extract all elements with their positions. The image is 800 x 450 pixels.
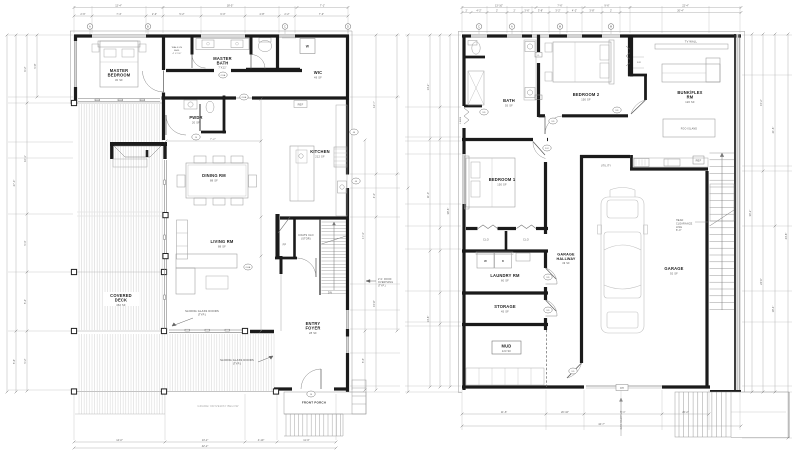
svg-text:STORAGE: STORAGE xyxy=(494,304,516,309)
svg-text:FRONT PORCH: FRONT PORCH xyxy=(302,401,326,405)
svg-text:11'-6": 11'-6" xyxy=(501,410,507,414)
svg-text:4'-2": 4'-2" xyxy=(572,8,577,12)
svg-text:5'-4": 5'-4" xyxy=(23,299,27,304)
svg-text:FUR: FUR xyxy=(637,62,642,64)
svg-text:SD: SD xyxy=(546,310,550,312)
svg-text:C: C xyxy=(478,24,480,28)
svg-text:HALLWAY: HALLWAY xyxy=(556,257,575,261)
svg-text:14'-8": 14'-8" xyxy=(426,316,430,323)
svg-text:CL: CL xyxy=(537,55,540,57)
svg-text:92 SF: 92 SF xyxy=(670,272,678,276)
svg-text:(TYP.): (TYP.) xyxy=(198,313,206,317)
svg-text:21'-6": 21'-6" xyxy=(771,127,775,134)
svg-text:5'-6": 5'-6" xyxy=(12,359,16,364)
svg-text:212 SF: 212 SF xyxy=(315,155,325,159)
svg-text:A: A xyxy=(89,24,91,28)
svg-text:UTILITY: UTILITY xyxy=(601,165,612,168)
svg-text:44'-7": 44'-7" xyxy=(598,422,605,426)
svg-text:88 SF: 88 SF xyxy=(218,245,226,249)
svg-text:20'-2": 20'-2" xyxy=(682,410,689,414)
svg-text:CL: CL xyxy=(537,97,540,99)
svg-text:3'-6": 3'-6" xyxy=(524,8,529,12)
svg-text:SLIDING GLASS DOORS: SLIDING GLASS DOORS xyxy=(185,309,219,313)
svg-text:FP: FP xyxy=(283,243,287,247)
svg-text:SD: SD xyxy=(615,110,619,112)
svg-text:OHA: OHA xyxy=(246,266,251,269)
svg-text:7'-1": 7'-1" xyxy=(620,410,625,414)
svg-text:A: A xyxy=(511,24,513,28)
svg-text:120 SF: 120 SF xyxy=(685,100,695,104)
svg-text:OHA: OHA xyxy=(242,96,247,99)
svg-text:7'-6": 7'-6" xyxy=(557,3,562,7)
svg-text:REF: REF xyxy=(298,102,304,106)
svg-text:150 SF: 150 SF xyxy=(581,98,591,102)
svg-text:12'-4": 12'-4" xyxy=(115,3,122,7)
svg-text:27'-0": 27'-0" xyxy=(12,180,16,187)
svg-text:44'-8": 44'-8" xyxy=(784,233,788,240)
svg-text:7'X12': 7'X12' xyxy=(218,65,227,69)
svg-text:LAUNDRY RM: LAUNDRY RM xyxy=(490,273,520,278)
svg-text:7'-3": 7'-3" xyxy=(319,12,324,16)
svg-text:KITCHEN: KITCHEN xyxy=(310,149,330,154)
svg-text:CLO: CLO xyxy=(523,238,529,242)
svg-text:(TYP.): (TYP.) xyxy=(233,362,241,366)
svg-text:60 SF: 60 SF xyxy=(501,279,509,283)
svg-text:18'-5": 18'-5" xyxy=(227,3,234,7)
svg-text:7'-4": 7'-4" xyxy=(116,12,121,16)
svg-text:13'-2": 13'-2" xyxy=(202,438,209,442)
svg-text:SD: SD xyxy=(571,371,575,373)
svg-text:7'-1": 7'-1" xyxy=(320,3,325,7)
svg-text:CLO: CLO xyxy=(483,238,489,242)
svg-text:D: D xyxy=(347,24,349,28)
svg-text:B: B xyxy=(147,24,149,28)
svg-text:W: W xyxy=(484,259,487,263)
svg-text:18'-4": 18'-4" xyxy=(771,306,775,313)
svg-text:20'-10": 20'-10" xyxy=(561,410,569,414)
svg-text:202: 202 xyxy=(545,148,550,150)
svg-text:BEDROOM: BEDROOM xyxy=(108,73,131,78)
svg-text:SLIDING GLASS DOORS: SLIDING GLASS DOORS xyxy=(220,358,254,362)
svg-text:2'-3": 2'-3" xyxy=(152,12,157,16)
svg-text:5'-5": 5'-5" xyxy=(361,358,365,363)
svg-text:FOYER: FOYER xyxy=(305,326,320,331)
svg-text:5'-8": 5'-8" xyxy=(33,63,37,68)
svg-text:14'-0": 14'-0" xyxy=(116,438,123,442)
svg-text:6'-2": 6'-2" xyxy=(23,66,27,71)
svg-text:20'-4": 20'-4" xyxy=(677,8,684,12)
svg-text:W: W xyxy=(306,45,310,49)
svg-text:11'-6": 11'-6" xyxy=(303,438,309,442)
svg-text:45 SF: 45 SF xyxy=(501,310,509,314)
svg-text:BEDROOM 1: BEDROOM 1 xyxy=(489,177,516,182)
svg-text:4'-10": 4'-10" xyxy=(258,438,265,442)
svg-text:3'-2": 3'-2" xyxy=(555,8,560,12)
svg-text:3'-8": 3'-8" xyxy=(538,8,543,12)
svg-text:7'-2": 7'-2" xyxy=(210,138,216,141)
svg-text:DN: DN xyxy=(328,291,332,295)
svg-text:4'-0": 4'-0" xyxy=(372,193,376,198)
svg-text:BEDROOM 2: BEDROOM 2 xyxy=(573,92,600,97)
svg-text:88 SF: 88 SF xyxy=(210,179,218,183)
svg-text:C: C xyxy=(284,24,286,28)
svg-text:M: M xyxy=(559,24,561,28)
svg-text:(STOR): (STOR) xyxy=(301,238,310,241)
svg-text:12'-7": 12'-7" xyxy=(372,101,376,108)
svg-text:4'-2": 4'-2" xyxy=(476,8,481,12)
svg-text:WIC: WIC xyxy=(314,70,323,75)
svg-text:MUD: MUD xyxy=(502,344,512,349)
svg-text:6'-0": 6'-0" xyxy=(220,12,225,16)
svg-text:GRADE/ DRIVEWAY BELOW: GRADE/ DRIVEWAY BELOW xyxy=(197,404,238,408)
svg-text:LINEN: LINEN xyxy=(460,116,462,123)
svg-text:SHR.: SHR. xyxy=(174,50,180,52)
svg-text:11'-0": 11'-0" xyxy=(426,192,430,198)
svg-text:WALK-IN: WALK-IN xyxy=(172,46,183,49)
svg-text:GARAGE: GARAGE xyxy=(557,253,575,257)
svg-text:5'-3": 5'-3" xyxy=(23,240,27,245)
svg-text:150 SF: 150 SF xyxy=(497,183,507,187)
svg-text:9'-6": 9'-6" xyxy=(604,3,609,7)
svg-text:17'-4": 17'-4" xyxy=(361,232,365,239)
svg-text:123 SF: 123 SF xyxy=(502,349,512,353)
svg-text:4' X 5'6": 4' X 5'6" xyxy=(172,53,181,55)
svg-text:462 SF: 462 SF xyxy=(116,303,126,307)
svg-text:LIVING RM: LIVING RM xyxy=(211,239,234,244)
svg-text:49 SF: 49 SF xyxy=(314,76,322,80)
svg-text:14'-2": 14'-2" xyxy=(426,84,430,91)
svg-text:SD: SD xyxy=(546,277,550,279)
svg-text:TV WALL: TV WALL xyxy=(685,40,698,44)
svg-text:M: M xyxy=(610,24,612,28)
svg-text:OSA: OSA xyxy=(221,74,226,77)
svg-text:3'-8": 3'-8" xyxy=(589,8,594,12)
svg-text:DINING RM: DINING RM xyxy=(202,173,226,178)
svg-text:38'-6": 38'-6" xyxy=(446,208,450,215)
svg-text:28 SF: 28 SF xyxy=(309,331,317,335)
svg-text:39'-2": 39'-2" xyxy=(748,210,752,217)
svg-text:(TYP.): (TYP.) xyxy=(378,284,386,287)
svg-text:42'-2": 42'-2" xyxy=(202,444,209,448)
svg-text:FOO ISLAND: FOO ISLAND xyxy=(681,128,698,131)
svg-text:24'-6": 24'-6" xyxy=(759,278,763,285)
svg-text:DECK: DECK xyxy=(115,298,127,303)
svg-text:REF: REF xyxy=(696,159,702,163)
svg-text:49 SF: 49 SF xyxy=(562,262,570,265)
svg-text:4'-8": 4'-8" xyxy=(259,12,264,16)
svg-text:BATH: BATH xyxy=(217,61,229,66)
svg-text:OH: OH xyxy=(620,387,624,390)
svg-text:15'-2": 15'-2" xyxy=(759,99,763,106)
svg-text:SD: SD xyxy=(482,112,486,114)
svg-text:SD: SD xyxy=(551,121,555,123)
svg-text:10'-1": 10'-1" xyxy=(23,155,27,162)
svg-text:13'-10": 13'-10" xyxy=(495,3,503,7)
svg-text:20 SF: 20 SF xyxy=(192,121,200,125)
svg-text:2'-6": 2'-6" xyxy=(80,12,85,16)
svg-text:22'-4": 22'-4" xyxy=(682,3,689,7)
svg-text:15'-8": 15'-8" xyxy=(372,300,376,307)
svg-text:8'-0": 8'-0" xyxy=(676,229,682,232)
svg-text:55 SF: 55 SF xyxy=(505,104,513,108)
svg-text:5'-2": 5'-2" xyxy=(179,12,184,16)
svg-text:30 SF: 30 SF xyxy=(115,78,123,82)
svg-text:5'-2": 5'-2" xyxy=(23,358,27,363)
svg-text:GARAGE: GARAGE xyxy=(664,266,683,271)
svg-text:2'-2": 2'-2" xyxy=(284,12,289,16)
svg-text:PWDR: PWDR xyxy=(189,115,202,120)
svg-text:BATH: BATH xyxy=(503,98,515,103)
svg-text:RM: RM xyxy=(687,95,694,100)
